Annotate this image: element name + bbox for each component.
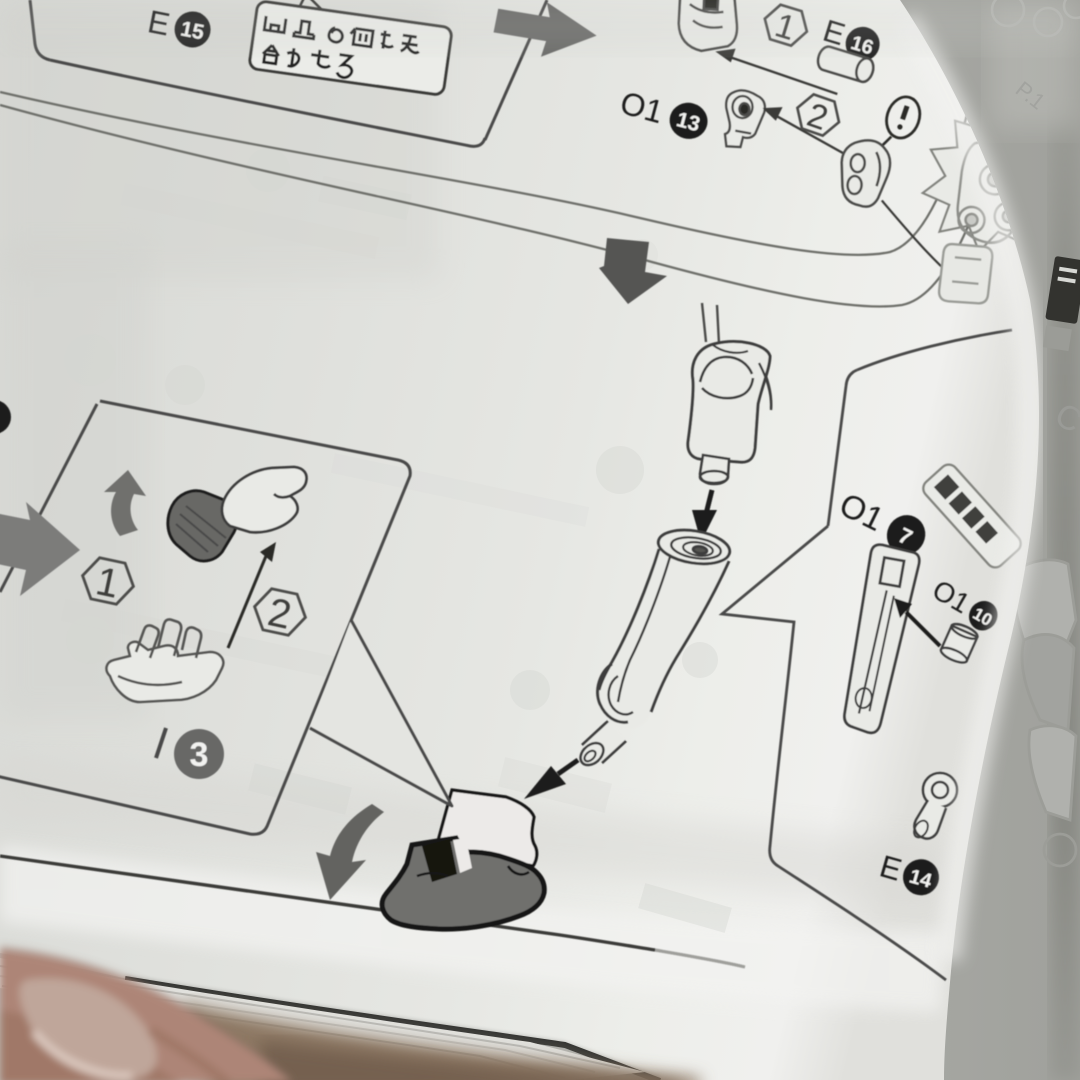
svg-text:3: 3 xyxy=(190,736,209,774)
